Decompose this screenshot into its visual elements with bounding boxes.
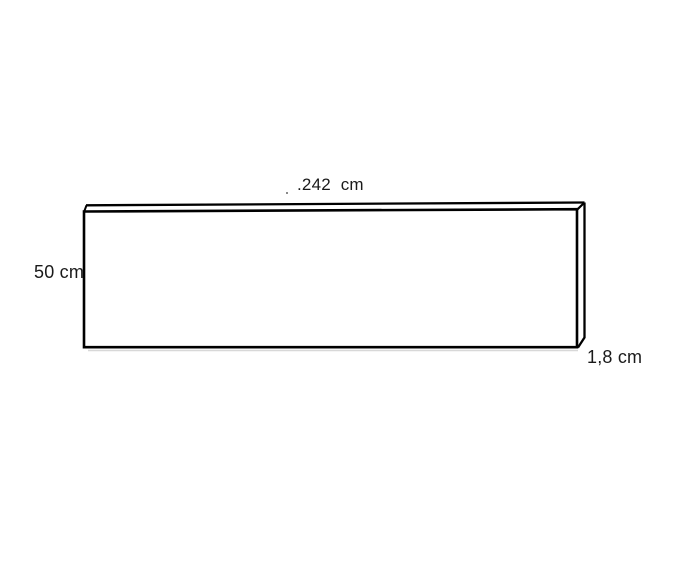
box-front-face: [84, 209, 577, 347]
stray-dot: [286, 192, 288, 194]
height-dimension-label: 50 cm: [34, 263, 84, 281]
dimension-diagram: .242 cm 50 cm 1,8 cm: [0, 0, 700, 578]
box-right-side-edge: [578, 203, 585, 348]
depth-dimension-label: 1,8 cm: [587, 348, 642, 366]
width-dimension-label: .242 cm: [297, 176, 364, 193]
box-top-back-edge: [86, 203, 585, 206]
box-outline-drawing: [0, 0, 700, 578]
